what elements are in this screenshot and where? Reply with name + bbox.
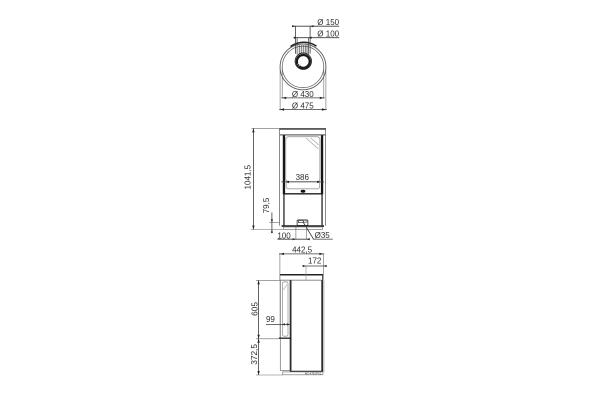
- svg-text:Ø 100: Ø 100: [317, 30, 339, 39]
- svg-text:79,5: 79,5: [262, 197, 271, 213]
- svg-text:605: 605: [249, 302, 259, 316]
- svg-text:100: 100: [277, 231, 291, 240]
- svg-text:Ø 150: Ø 150: [317, 18, 339, 27]
- svg-text:Ø 475: Ø 475: [292, 102, 314, 111]
- svg-text:MC-4753-P01: MC-4753-P01: [305, 371, 322, 375]
- svg-text:1041,5: 1041,5: [243, 164, 252, 189]
- svg-text:Ø35: Ø35: [315, 231, 331, 240]
- svg-text:172: 172: [308, 257, 322, 266]
- svg-text:442,5: 442,5: [292, 246, 313, 255]
- svg-text:386: 386: [296, 173, 310, 182]
- svg-text:Ø 430: Ø 430: [292, 90, 314, 99]
- svg-text:99: 99: [266, 315, 275, 324]
- svg-text:372,5: 372,5: [249, 344, 259, 365]
